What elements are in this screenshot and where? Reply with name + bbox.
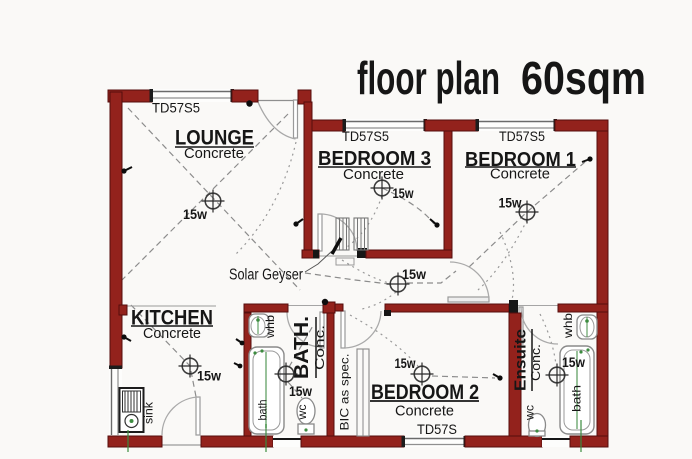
svg-text:TD57S: TD57S [417, 422, 457, 437]
svg-text:BIC as spec.: BIC as spec. [338, 354, 352, 431]
svg-text:15w: 15w [562, 355, 585, 370]
svg-text:TD57S5: TD57S5 [499, 129, 545, 144]
svg-text:Solar Geyser: Solar Geyser [229, 267, 303, 284]
svg-text:Concrete: Concrete [490, 166, 550, 183]
svg-text:Concrete: Concrete [184, 145, 244, 162]
svg-text:Ensuite: Ensuite [513, 329, 530, 391]
svg-text:TD57S5: TD57S5 [342, 129, 389, 144]
svg-text:bath: bath [256, 400, 270, 421]
svg-text:15w: 15w [289, 384, 312, 399]
svg-text:15w: 15w [183, 207, 207, 222]
svg-text:Conc.: Conc. [528, 344, 543, 381]
svg-text:15w: 15w [402, 267, 426, 282]
svg-text:Concrete: Concrete [143, 325, 201, 342]
svg-text:15w: 15w [499, 196, 522, 211]
svg-text:floor plan: floor plan [357, 52, 500, 104]
svg-text:15w: 15w [393, 186, 414, 201]
svg-text:15w: 15w [395, 356, 416, 371]
svg-text:wc: wc [523, 405, 537, 421]
svg-text:whb: whb [263, 315, 277, 339]
svg-text:BATH.: BATH. [291, 316, 313, 379]
svg-text:Conc.: Conc. [312, 325, 327, 370]
svg-text:bath: bath [570, 385, 584, 412]
svg-text:15w: 15w [197, 369, 221, 384]
svg-text:TD57S5: TD57S5 [152, 101, 200, 116]
svg-text:Concrete: Concrete [343, 166, 404, 183]
svg-text:60sqm: 60sqm [521, 52, 646, 104]
svg-text:whb: whb [561, 313, 575, 340]
svg-text:wc: wc [295, 405, 309, 421]
svg-text:sink: sink [142, 401, 156, 424]
svg-text:Concrete: Concrete [395, 403, 454, 420]
